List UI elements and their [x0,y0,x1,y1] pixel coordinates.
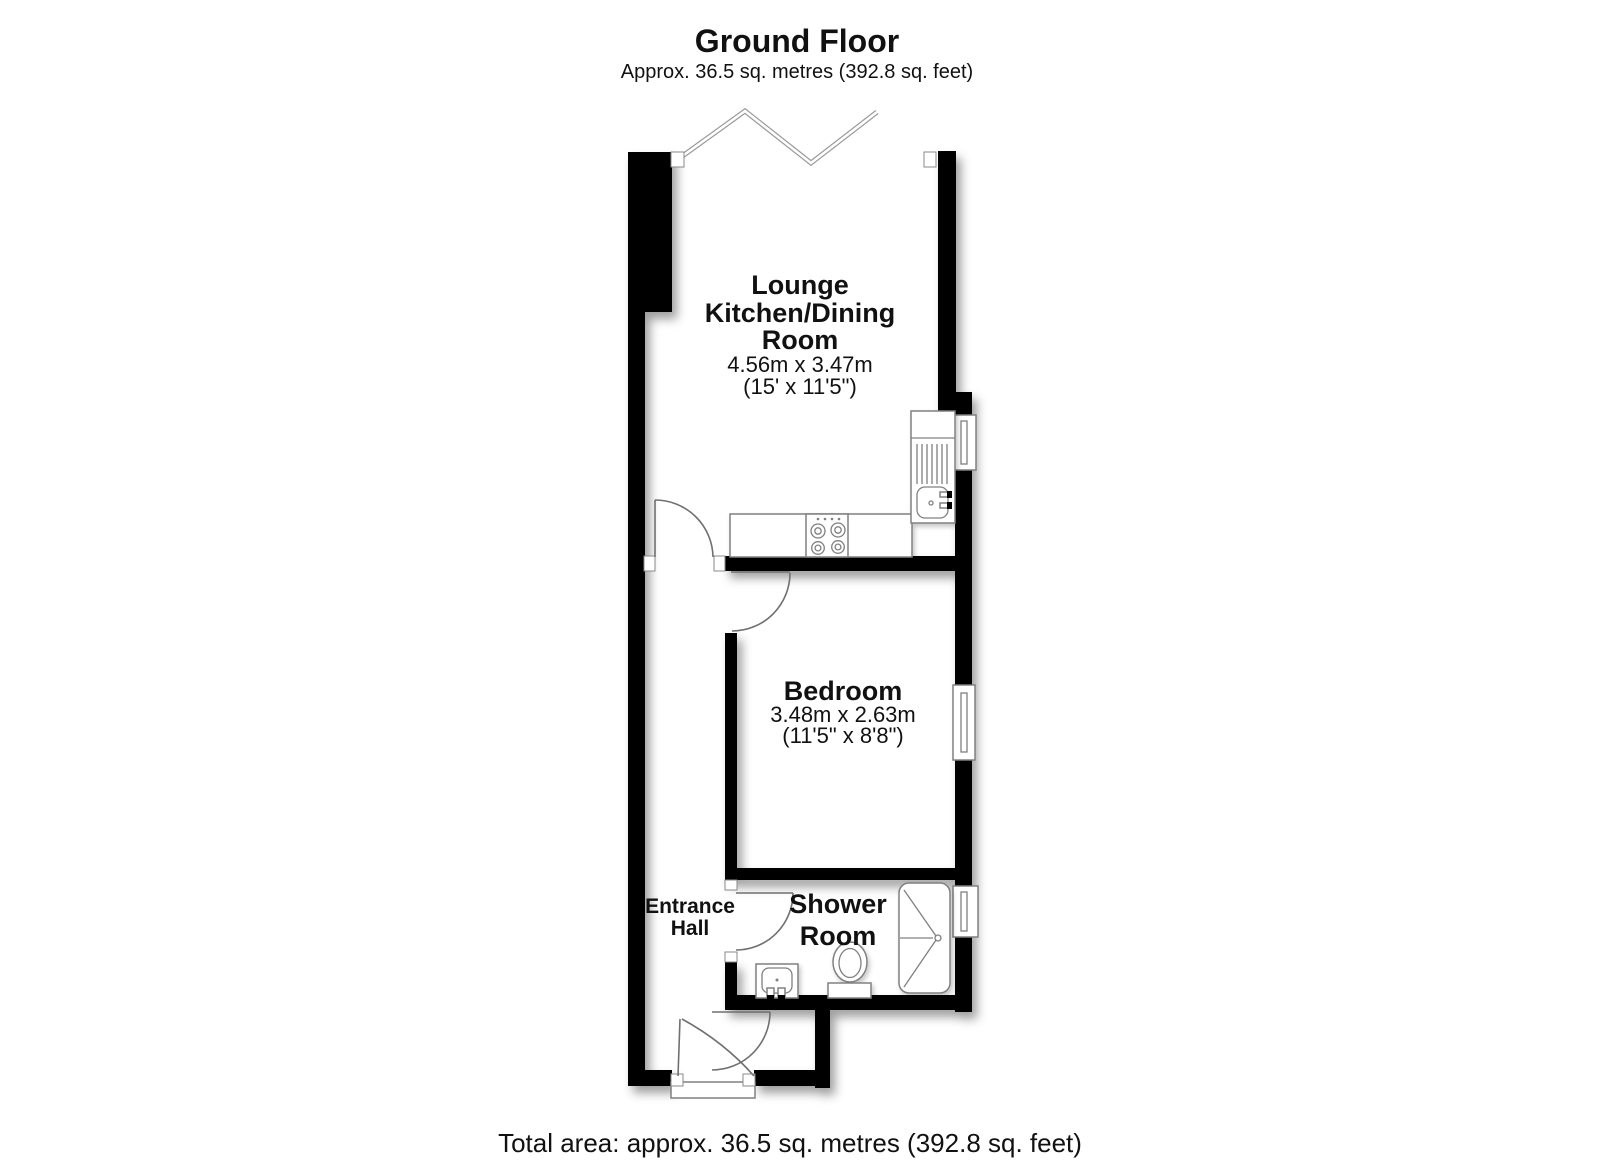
hob [806,514,848,557]
entrance-hall-label-line1: Entrance [645,895,735,918]
left-outer-wall [628,152,645,1086]
bedroom-door [731,572,790,631]
right-wall-upper [938,151,956,412]
floorplan-page: Ground Floor Approx. 36.5 sq. metres (39… [0,0,1600,1164]
room-labels: Lounge Kitchen/Dining Room 4.56m x 3.47m… [645,270,916,951]
shower-window [953,886,978,937]
jamb-top-right [924,152,936,167]
kitchen-window [953,415,976,470]
lounge-label-line2: Kitchen/Dining [705,298,896,328]
lounge-dim-imperial: (15' x 11'5") [743,374,857,399]
jamb-lounge-door-right [714,556,725,571]
toilet-cistern [828,983,871,998]
floorplan-canvas: Ground Floor Approx. 36.5 sq. metres (39… [0,0,1600,1164]
left-wall-thick-section [645,152,672,312]
plan-subtitle: Approx. 36.5 sq. metres (392.8 sq. feet) [621,61,973,83]
shower-room-door [736,893,793,950]
bedroom-dim-imperial: (11'5" x 8'8") [782,723,903,748]
jamb-top-left [671,152,684,167]
jamb-front-door-left [671,1074,683,1086]
lounge-divider-wall [725,556,958,571]
jamb-shower-door-top [725,880,737,890]
bedroom-window [953,685,975,760]
plan-title: Ground Floor [695,23,899,59]
bedroom-left-wall [725,633,737,868]
shower-enclosure [899,883,950,993]
jamb-lounge-door-left [644,556,655,571]
open-boundary-zigzag [677,111,877,163]
bottom-wall-right [754,1070,830,1086]
lounge-door [655,500,713,557]
shower-room-label-line2: Room [800,921,877,951]
shower-room-label-line1: Shower [789,889,887,919]
front-door [678,1012,770,1076]
lounge-label-line1: Lounge [751,270,848,300]
entrance-hall-label-line2: Hall [671,917,710,940]
right-wall-jog [938,392,972,412]
lounge-label-line3: Room [762,325,839,355]
kitchen-fixtures [730,411,955,557]
total-area-text: Total area: approx. 36.5 sq. metres (392… [498,1128,1082,1158]
jamb-shower-door-bottom [725,952,737,962]
bottom-wall-left [628,1070,672,1086]
wash-basin [756,964,798,1000]
kitchen-sink-unit [911,411,955,523]
front-door-threshold [671,1082,755,1098]
bedroom-bottom-wall [725,868,972,880]
